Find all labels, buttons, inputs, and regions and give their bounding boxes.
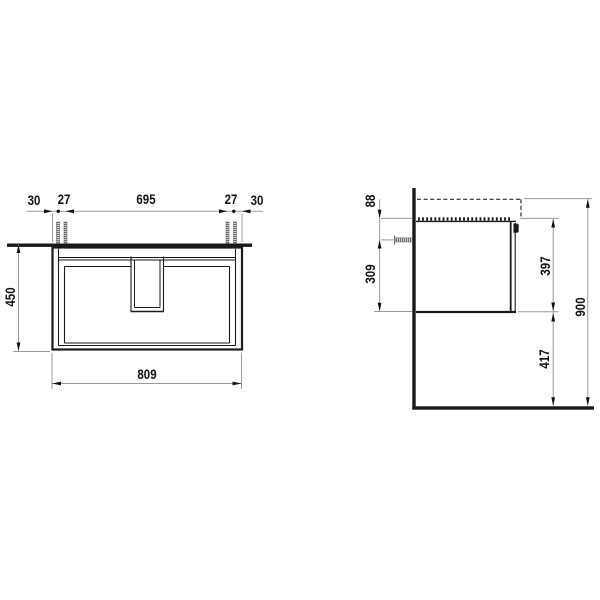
dim-label-pitch-left: 27: [57, 191, 70, 207]
arrow-417-top: [551, 313, 555, 322]
handle-profile: [514, 224, 519, 233]
cabinet-outline: [53, 248, 243, 350]
dim-label-top-offset: 88: [362, 194, 378, 207]
arrow-88-bottom: [378, 210, 382, 219]
dot-chain-left-bolt: [57, 210, 60, 213]
mounting-bolt-left-outer: [57, 222, 60, 244]
arrow-417-bottom: [551, 397, 555, 406]
arrow-chain-right-span: [219, 209, 228, 213]
arrow-width-right: [233, 382, 242, 386]
technical-drawing-page: 30 27 695 27 30 450 809 88 309 397 417 9…: [0, 0, 600, 600]
dim-label-span-center: 695: [136, 191, 155, 207]
arrow-chain-left-edge: [44, 209, 53, 213]
dim-label-overall-height: 900: [572, 297, 588, 316]
dot-chain-right-bolt: [232, 210, 235, 213]
arrow-397-bottom: [551, 303, 555, 312]
mounting-bolt-right-outer: [234, 222, 237, 244]
dim-label-body-height: 397: [537, 256, 553, 275]
mounting-bolt-right-inner: [226, 222, 229, 244]
arrow-height-bottom: [17, 343, 21, 352]
floor-line: [412, 406, 594, 409]
dim-label-floor-clearance: 417: [536, 349, 552, 368]
arrow-309-bottom: [378, 303, 382, 312]
dim-label-cabinet-height: 450: [2, 287, 18, 306]
arrow-width-left: [52, 382, 61, 386]
arrow-397-top: [551, 219, 555, 228]
dim-label-cabinet-width: 809: [137, 366, 156, 382]
dim-label-anchor-to-bottom: 309: [362, 264, 378, 283]
arrow-900-bottom: [586, 397, 590, 406]
dim-label-pitch-right: 27: [224, 191, 237, 207]
wall-anchor-screw: [396, 238, 413, 242]
arrow-chain-right-edge: [242, 209, 251, 213]
arrow-900-top: [586, 199, 590, 208]
arrow-chain-left-span: [66, 209, 75, 213]
dim-label-overhang-left: 30: [27, 192, 40, 208]
mounting-bolt-left-inner: [64, 222, 67, 244]
arrow-309-top: [378, 240, 382, 249]
dim-label-overhang-right: 30: [250, 192, 263, 208]
countertop-line: [7, 244, 252, 247]
drawing-canvas: [0, 0, 600, 600]
wall-line: [412, 188, 415, 409]
